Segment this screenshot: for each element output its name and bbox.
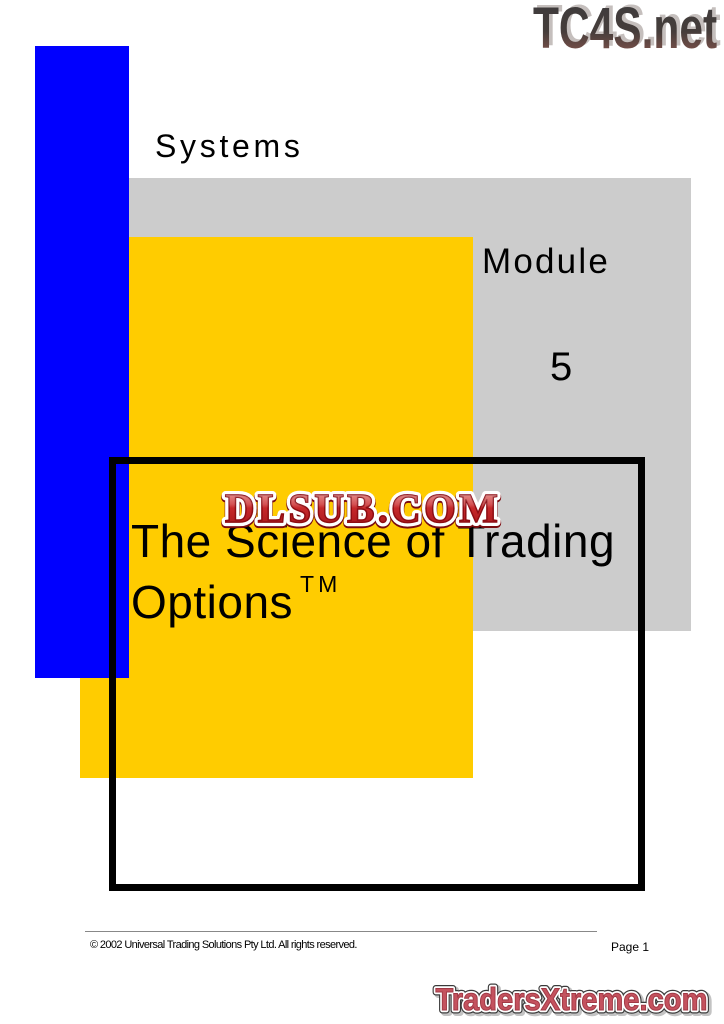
svg-text:TC4S.net: TC4S.net bbox=[533, 0, 717, 60]
svg-text:DLSUB.COM: DLSUB.COM bbox=[225, 485, 501, 531]
svg-text:TradersXtreme.com: TradersXtreme.com bbox=[436, 983, 708, 1017]
